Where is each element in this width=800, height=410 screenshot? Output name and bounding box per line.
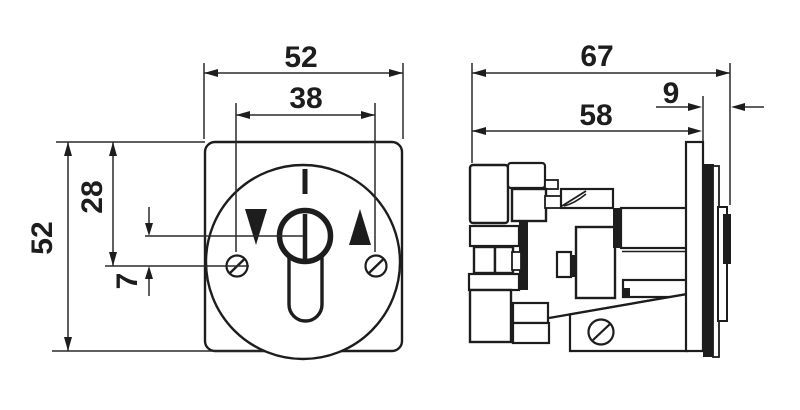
dim-screw-spacing-label: 38 (289, 82, 322, 115)
key-switch-drawing: 52 38 52 28 (0, 0, 800, 410)
body-block-top (508, 163, 545, 188)
side-view (469, 142, 731, 357)
front-view (205, 142, 402, 359)
switch-body-center (576, 227, 615, 298)
lower-arm (623, 280, 687, 297)
dim-edge-to-screw-label: 28 (76, 180, 109, 213)
body-block-rear-top (470, 165, 508, 223)
terminal-band-upper (470, 226, 519, 246)
clamp-block (570, 294, 687, 351)
terminal-cell-right (495, 247, 513, 273)
terminal-band-lower (469, 274, 519, 290)
dim-bezel-depth-label: 9 (663, 77, 680, 110)
upper-arm-black-edge (613, 208, 621, 248)
technical-drawing-canvas: 52 38 52 28 (0, 0, 800, 410)
upper-arm (621, 208, 687, 248)
dim-body-depth-label: 58 (579, 99, 612, 132)
terminal-notch (512, 252, 521, 270)
top-tab (545, 180, 558, 189)
body-block-upper (512, 189, 546, 221)
lower-arm-notch (623, 288, 630, 297)
dim-edge-to-screw: 28 (76, 142, 117, 266)
terminal-cell-left (474, 247, 495, 273)
dim-bezel-depth: 9 (656, 77, 764, 111)
lower-tab-lower (513, 323, 549, 343)
mounting-flange (686, 142, 703, 351)
clamp-screw-icon (589, 320, 614, 345)
dim-front-width-label: 52 (284, 41, 317, 74)
cylinder-face-black (723, 214, 731, 264)
dim-front-height-label: 52 (26, 221, 59, 254)
lower-tab-upper (513, 303, 548, 323)
actuator-tab (557, 252, 571, 277)
spring-contact (561, 189, 613, 208)
body-block-rear-bottom (470, 290, 511, 342)
screw-right-icon (366, 256, 387, 277)
dim-center-to-screw-label: 7 (111, 273, 144, 290)
dim-total-depth-label: 67 (580, 40, 613, 73)
